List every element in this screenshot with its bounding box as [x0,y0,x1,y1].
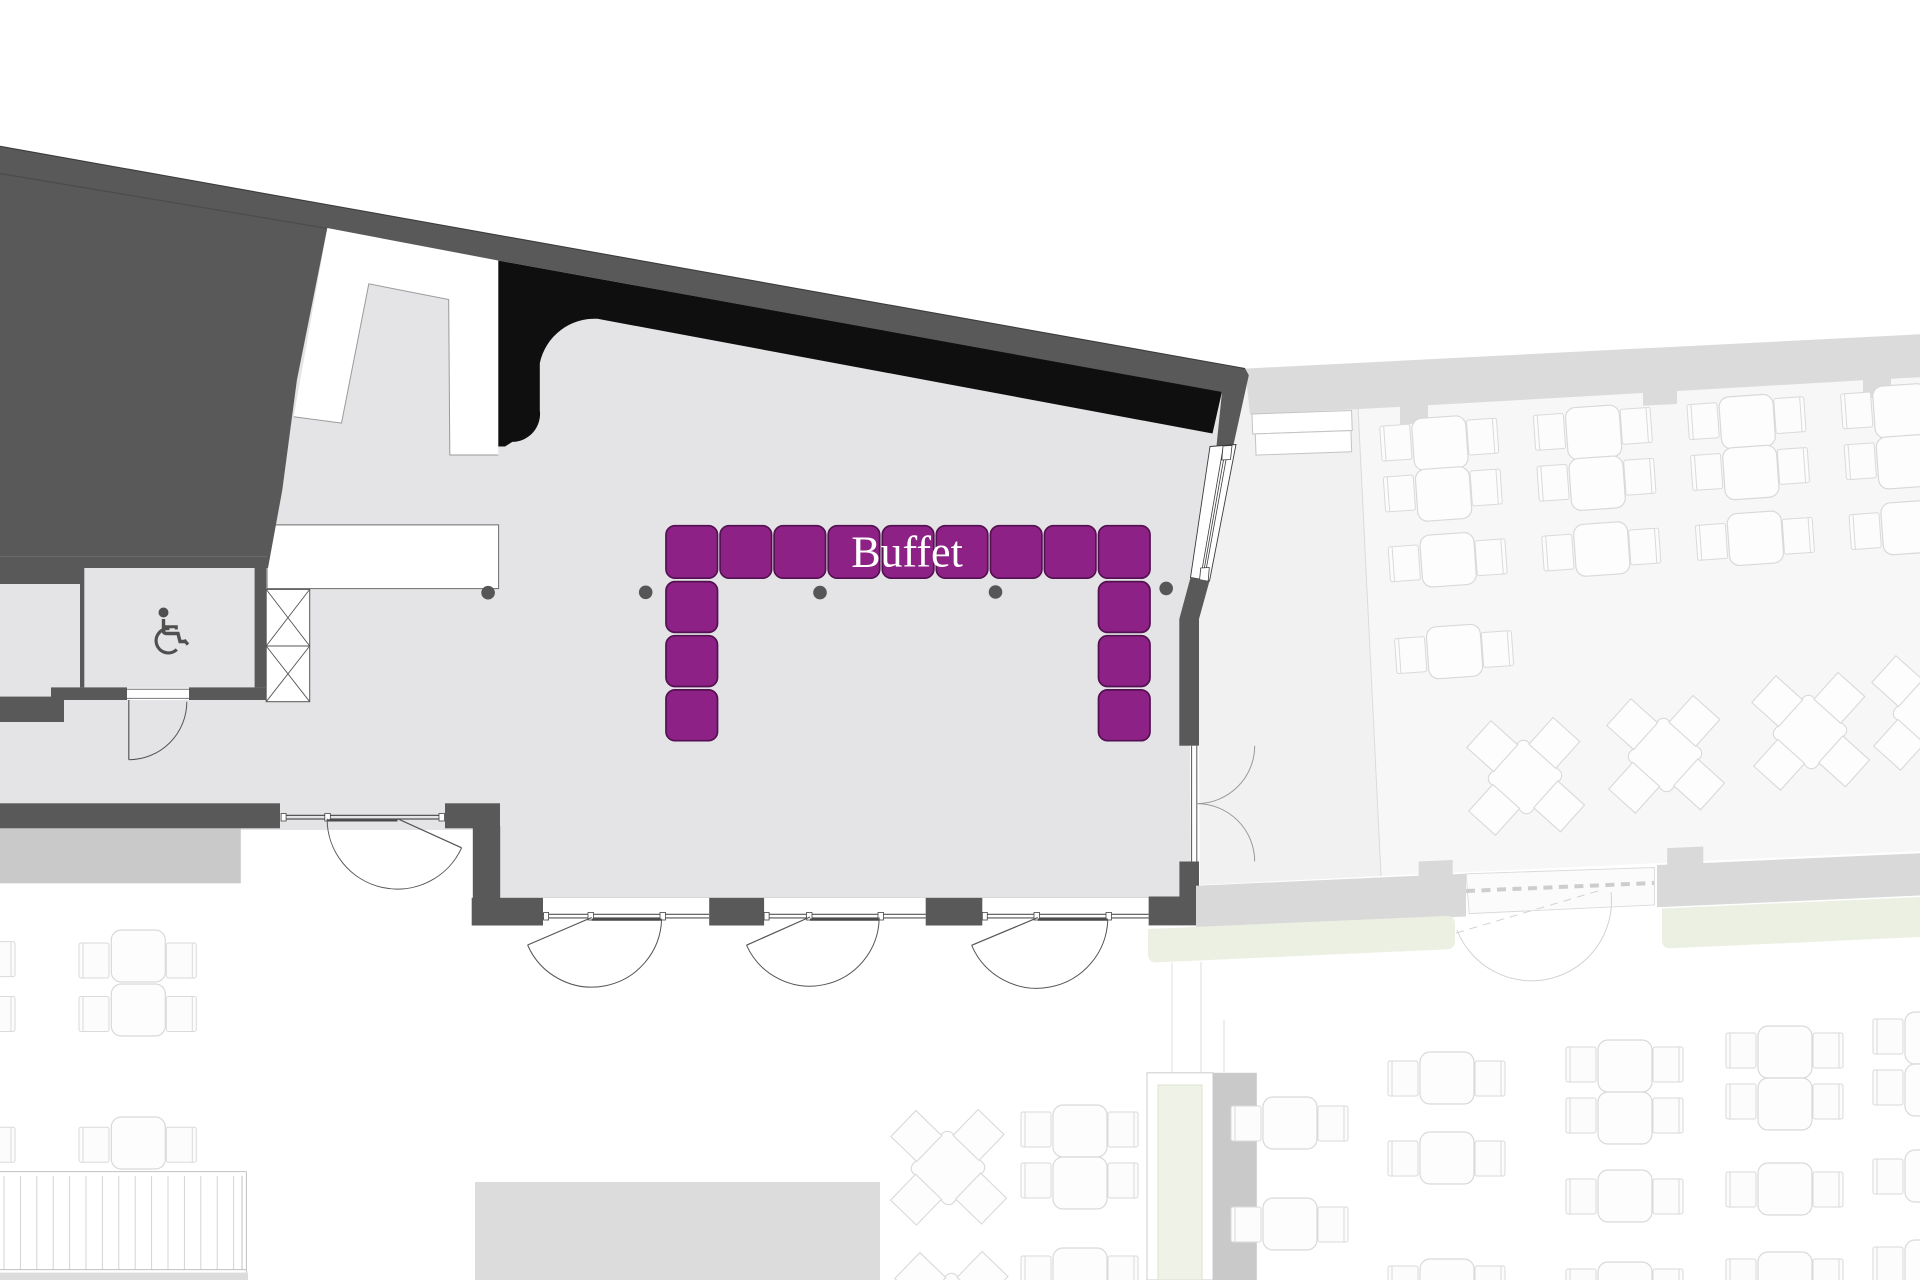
svg-text:Buffet: Buffet [851,528,963,577]
